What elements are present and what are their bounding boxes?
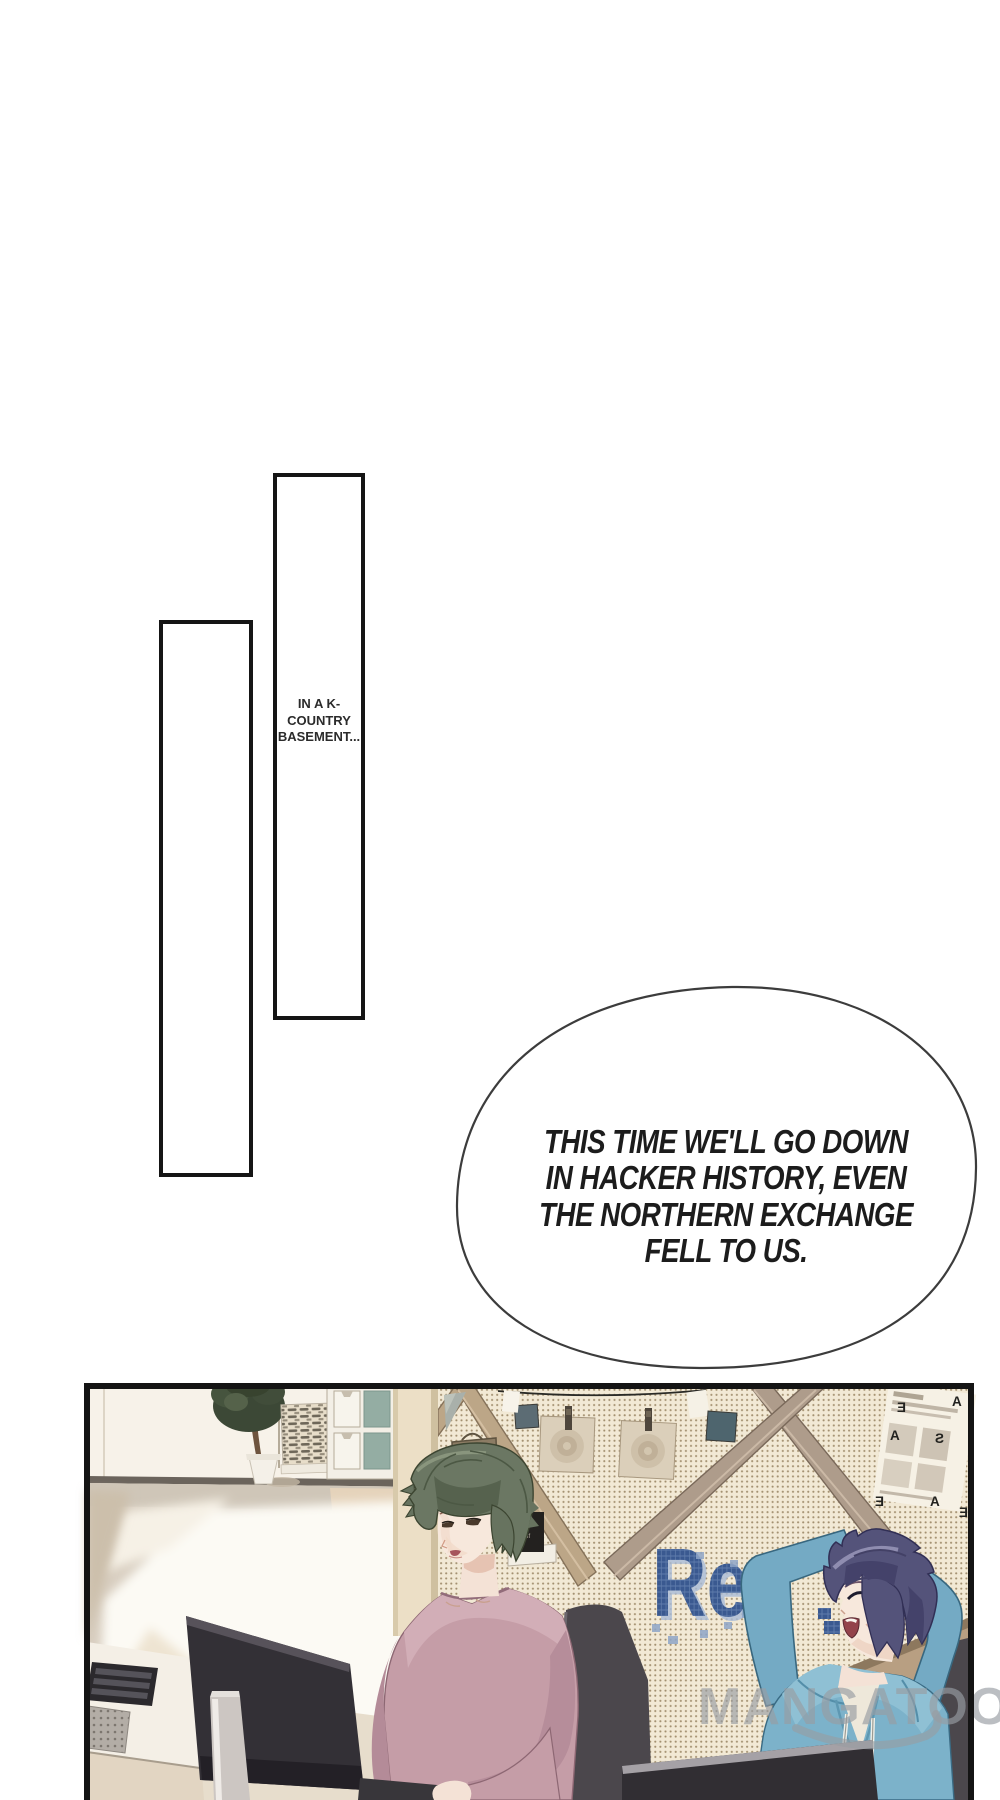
svg-text:E: E: [875, 1494, 884, 1509]
svg-text:E: E: [897, 1400, 906, 1415]
svg-text:A: A: [890, 1428, 900, 1443]
svg-text:E: E: [959, 1505, 968, 1520]
svg-text:MANGATOON: MANGATOON: [698, 1678, 1000, 1736]
svg-text:Re: Re: [652, 1529, 749, 1637]
svg-text:S: S: [935, 1431, 944, 1446]
svg-text:A: A: [952, 1394, 962, 1409]
svg-text:A: A: [930, 1494, 940, 1509]
